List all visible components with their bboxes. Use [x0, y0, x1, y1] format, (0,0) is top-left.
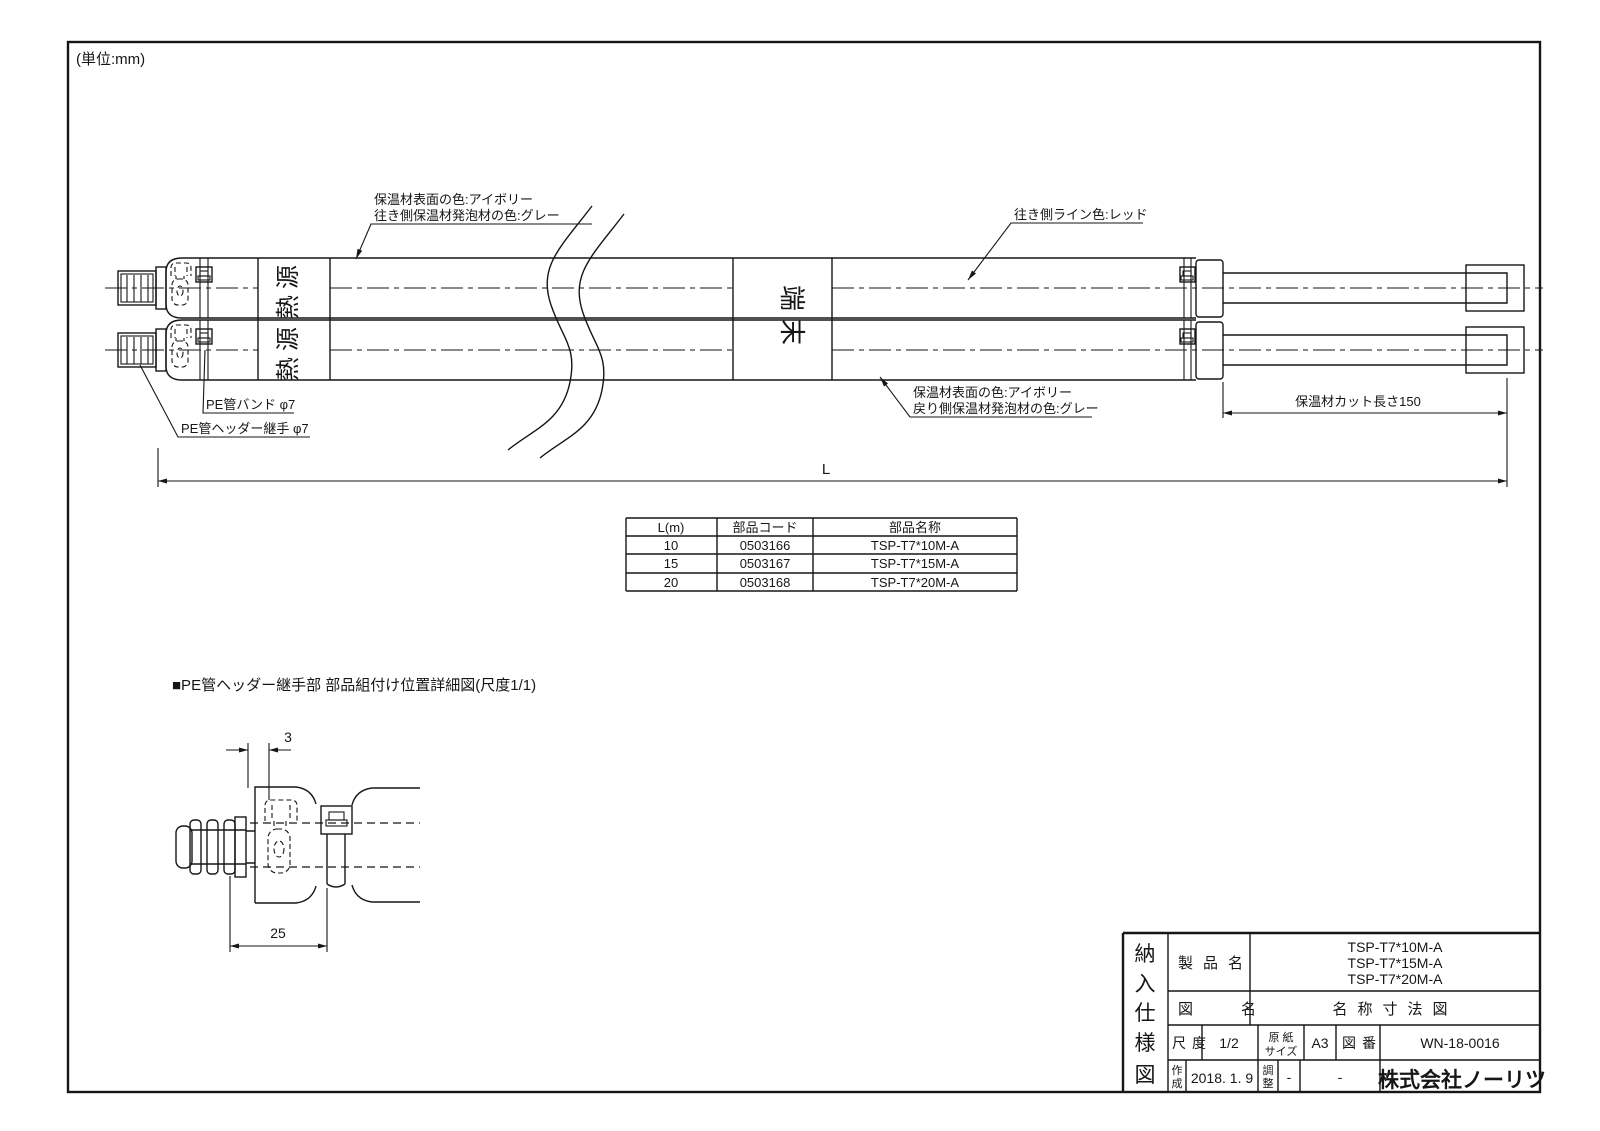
cell-name: TSP-T7*10M-A [871, 538, 959, 553]
heat-source-mark: 熱源 [275, 259, 302, 319]
scale-label: 尺度 [1172, 1035, 1212, 1051]
pipe-run-1: 熱源 [105, 258, 1543, 319]
detail-title: ■PE管ヘッダー継手部 部品組付け位置詳細図(尺度1/1) [172, 677, 536, 694]
callout-text: PE管バンド φ7 [206, 397, 295, 412]
doc-type-char: 入 [1135, 973, 1156, 996]
dim-insulation-cut: 保温材カット長さ150 [1223, 378, 1507, 487]
callout-text: PE管ヘッダー継手 φ7 [181, 421, 309, 436]
callout-outbound-stripe: 往き側ライン色:レッド [968, 207, 1148, 280]
callout-return-insulation: 保温材表面の色:アイボリー 戻り側保温材発泡材の色:グレー [880, 377, 1099, 417]
dim-text: L [822, 461, 830, 478]
doc-type-char: 仕 [1135, 1002, 1156, 1025]
callout-text: 往き側ライン色:レッド [1014, 207, 1148, 222]
adjust-label: 調 [1263, 1063, 1274, 1077]
cell-length: 20 [664, 575, 678, 590]
dim-text: 25 [270, 925, 286, 941]
paper-size-label: 原 紙 [1268, 1030, 1293, 1044]
sheet-border [68, 42, 1540, 1092]
product-name: TSP-T7*20M-A [1348, 971, 1444, 987]
cell-code: 0503167 [740, 556, 791, 571]
doc-type-label: 納 入 仕 様 図 [1135, 943, 1156, 1087]
drawing-name: 名称寸法図 [1332, 1001, 1457, 1018]
created-date: 2018. 1. 9 [1191, 1070, 1253, 1086]
unit-note: (単位:mm) [76, 51, 145, 68]
cell-name: TSP-T7*20M-A [871, 575, 959, 590]
cell-length: 10 [664, 538, 678, 553]
number-label: 図番 [1342, 1035, 1382, 1051]
table-row: 20 0503168 TSP-T7*20M-A [664, 575, 960, 590]
table-header: 部品名称 [889, 520, 941, 535]
table-row: 10 0503166 TSP-T7*10M-A [664, 538, 960, 553]
paper-size-label: サイズ [1265, 1044, 1298, 1058]
doc-type-char: 納 [1135, 943, 1156, 966]
scale-value: 1/2 [1219, 1035, 1239, 1051]
dim-text: 3 [284, 729, 292, 745]
pipe-run-2 [105, 320, 1543, 381]
parts-table: L(m) 部品コード 部品名称 10 0503166 TSP-T7*10M-A … [626, 518, 1017, 591]
created-label: 作 [1172, 1064, 1183, 1077]
cell-code: 0503166 [740, 538, 791, 553]
table-header: 部品コード [732, 520, 797, 535]
main-view: 熱源 端末 保温材表面の色:アイボリー 往き側保温材発泡材の色:グレー 往き側ラ… [105, 192, 1543, 487]
detail-dim-offset: 3 [226, 729, 292, 800]
table-row: 15 0503167 TSP-T7*15M-A [664, 556, 960, 571]
title-block: 納 入 仕 様 図 製品名 TSP-T7*10M-A TSP-T7*15M-A … [1123, 933, 1546, 1092]
extra-value: - [1338, 1069, 1343, 1085]
drawing-name-label: 図名 [1178, 1001, 1304, 1018]
created-label: 成 [1172, 1077, 1183, 1090]
detail-view: ■PE管ヘッダー継手部 部品組付け位置詳細図(尺度1/1) [172, 677, 536, 952]
detail-hose-fitting [176, 817, 255, 877]
product-name: TSP-T7*15M-A [1348, 955, 1444, 971]
adjust-value: - [1287, 1069, 1292, 1085]
table-header: L(m) [658, 520, 685, 535]
detail-header-joint [265, 800, 297, 873]
adjust-label: 整 [1263, 1076, 1274, 1090]
doc-type-char: 図 [1135, 1064, 1156, 1087]
callout-text: 戻り側保温材発泡材の色:グレー [913, 401, 1099, 416]
drawing-sheet: (単位:mm) [0, 0, 1600, 1131]
company-logo: 株式会社ノーリツ [1378, 1068, 1546, 1092]
callout-text: 保温材表面の色:アイボリー [913, 385, 1072, 400]
callout-text: 往き側保温材発泡材の色:グレー [374, 208, 560, 223]
drawing-number: WN-18-0016 [1420, 1035, 1500, 1051]
detail-dim-pitch: 25 [230, 876, 327, 952]
callout-text: 保温材表面の色:アイボリー [374, 192, 533, 207]
cell-code: 0503168 [740, 575, 791, 590]
terminal-mark: 端末 [777, 285, 807, 353]
detail-cable-tie [321, 806, 352, 887]
cell-name: TSP-T7*15M-A [871, 556, 959, 571]
doc-type-char: 様 [1135, 1032, 1156, 1055]
callout-outbound-insulation: 保温材表面の色:アイボリー 往き側保温材発泡材の色:グレー [356, 192, 592, 259]
dim-total-length: L [158, 448, 1507, 487]
product-name: TSP-T7*10M-A [1348, 939, 1444, 955]
break-symbol [508, 206, 624, 458]
detail-insulation-body [250, 787, 420, 903]
dim-text: 保温材カット長さ150 [1295, 394, 1421, 409]
cell-length: 15 [664, 556, 678, 571]
paper-value: A3 [1311, 1035, 1328, 1051]
product-label: 製品名 [1178, 955, 1253, 972]
